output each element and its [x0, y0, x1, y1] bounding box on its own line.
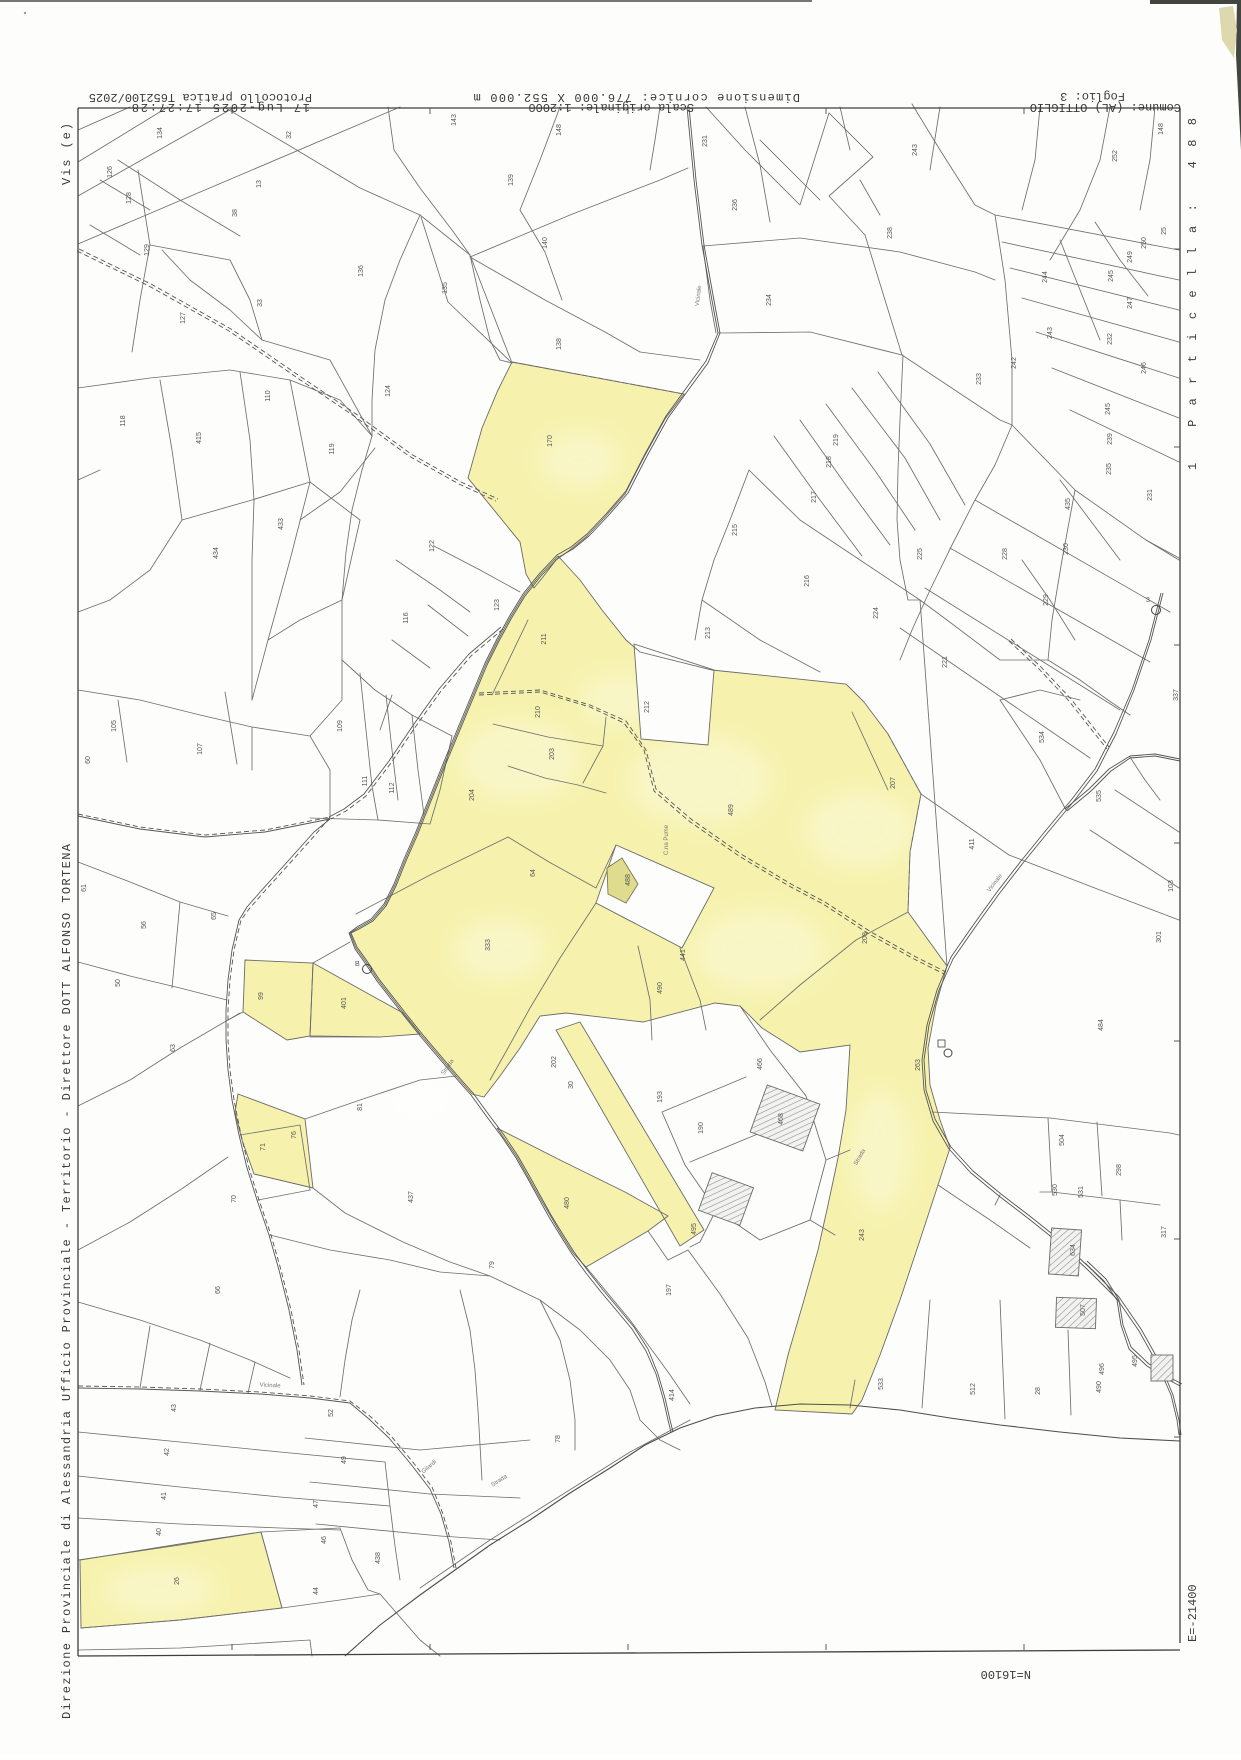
svg-text:46: 46: [321, 1536, 328, 1544]
svg-text:243: 243: [1047, 327, 1054, 339]
svg-text:250: 250: [1141, 237, 1148, 249]
svg-text:233: 233: [976, 373, 983, 385]
svg-text:135: 135: [442, 282, 449, 294]
svg-text:Direzione Provinciale di Aless: Direzione Provinciale di Alessandria Uff…: [60, 843, 74, 1719]
svg-text:122: 122: [429, 540, 436, 552]
svg-text:56: 56: [141, 921, 148, 929]
svg-text:17 Lug-2025 17:27:28: 17 Lug-2025 17:27:28: [130, 100, 310, 114]
svg-text:634: 634: [1070, 1244, 1077, 1256]
svg-text:138: 138: [556, 338, 563, 350]
svg-text:484: 484: [1098, 1019, 1105, 1031]
svg-text:438: 438: [375, 1552, 382, 1564]
svg-text:26: 26: [174, 1577, 181, 1585]
svg-text:118: 118: [120, 415, 127, 426]
svg-text:116: 116: [403, 612, 410, 623]
svg-text:127: 127: [180, 312, 187, 324]
svg-text:411: 411: [969, 838, 976, 849]
svg-text:44: 44: [313, 1587, 320, 1595]
svg-text:435: 435: [1065, 498, 1072, 510]
svg-text:495: 495: [691, 1223, 698, 1235]
svg-text:219: 219: [833, 434, 840, 446]
svg-text:246: 246: [1141, 362, 1148, 374]
svg-text:230: 230: [1063, 543, 1070, 555]
svg-text:213: 213: [705, 627, 712, 639]
svg-text:Comune: (AL) OTTIGLIO: Comune: (AL) OTTIGLIO: [1030, 100, 1181, 114]
svg-text:78: 78: [555, 1435, 562, 1443]
svg-text:415: 415: [196, 432, 203, 444]
svg-text:247: 247: [1127, 297, 1134, 309]
svg-text:107: 107: [197, 743, 204, 755]
svg-text:441: 441: [680, 949, 687, 961]
svg-text:C.na Pume: C.na Pume: [664, 824, 670, 855]
svg-text:207: 207: [890, 777, 897, 789]
svg-text:234: 234: [766, 294, 773, 306]
svg-text:61: 61: [81, 884, 88, 892]
svg-text:99: 99: [258, 992, 265, 1000]
svg-text:535: 535: [1096, 790, 1103, 802]
svg-text:203: 203: [549, 748, 556, 760]
svg-text:243: 243: [859, 1229, 866, 1241]
svg-text:143: 143: [451, 114, 458, 126]
svg-text:218: 218: [826, 456, 833, 468]
svg-text:229: 229: [1043, 594, 1050, 606]
svg-text:242: 242: [1011, 357, 1018, 369]
svg-text:337: 337: [1173, 689, 1180, 701]
svg-text:401: 401: [341, 997, 348, 1009]
svg-text:79: 79: [489, 1261, 496, 1269]
svg-text:B: B: [355, 961, 360, 968]
svg-text:202: 202: [551, 1056, 558, 1068]
svg-text:245: 245: [1105, 403, 1112, 415]
svg-text:110: 110: [265, 390, 272, 401]
svg-text:N=16100: N=16100: [981, 1667, 1031, 1681]
svg-text:249: 249: [1127, 251, 1134, 263]
svg-text:49: 49: [341, 1456, 348, 1464]
svg-text:507: 507: [1080, 1304, 1087, 1316]
svg-text:129: 129: [144, 244, 151, 256]
svg-text:136: 136: [358, 265, 365, 277]
svg-text:197: 197: [666, 1284, 673, 1296]
svg-text:E=-21400: E=-21400: [1186, 1584, 1200, 1642]
svg-text:534: 534: [1039, 731, 1046, 743]
svg-text:32: 32: [286, 131, 293, 139]
svg-text:504: 504: [1059, 1134, 1066, 1146]
svg-text:119: 119: [329, 443, 336, 454]
svg-text:489: 489: [728, 804, 735, 816]
svg-text:112: 112: [389, 782, 396, 793]
svg-text:488: 488: [625, 874, 632, 886]
svg-text:109: 109: [337, 720, 344, 732]
svg-text:123: 123: [494, 599, 501, 611]
svg-text:71: 71: [260, 1143, 267, 1151]
svg-text:437: 437: [408, 1191, 415, 1203]
svg-text:63: 63: [170, 1044, 177, 1052]
svg-text:111: 111: [362, 776, 369, 787]
svg-text:70: 70: [231, 1195, 238, 1203]
svg-text:263: 263: [915, 1059, 922, 1071]
svg-text:298: 298: [1116, 1164, 1123, 1176]
svg-text:64: 64: [530, 869, 537, 877]
svg-text:468: 468: [778, 1113, 785, 1125]
svg-text:466: 466: [757, 1058, 764, 1070]
svg-text:228: 228: [1002, 548, 1009, 560]
svg-text:81: 81: [357, 1103, 364, 1111]
svg-text:30: 30: [568, 1081, 575, 1089]
svg-text:239: 239: [1107, 433, 1114, 445]
svg-text:Vis (e): Vis (e): [60, 123, 74, 185]
svg-text:148: 148: [1158, 123, 1165, 135]
svg-text:236: 236: [732, 199, 739, 211]
svg-text:33: 33: [257, 299, 264, 307]
svg-text:76: 76: [291, 1131, 298, 1139]
svg-text:28: 28: [1035, 1387, 1042, 1395]
svg-text:317: 317: [1161, 1226, 1168, 1238]
svg-text:140: 140: [542, 237, 549, 249]
svg-text:190: 190: [698, 1122, 705, 1134]
svg-text:235: 235: [1106, 463, 1113, 475]
svg-text:128: 128: [126, 192, 133, 204]
svg-text:490: 490: [657, 982, 664, 994]
svg-text:243: 243: [912, 144, 919, 156]
svg-text:533: 533: [878, 1378, 885, 1390]
svg-text:148: 148: [556, 124, 563, 136]
svg-text:221: 221: [942, 656, 949, 668]
svg-text:414: 414: [669, 1389, 676, 1401]
svg-text:490: 490: [1096, 1381, 1103, 1393]
svg-text:231: 231: [702, 135, 709, 147]
svg-text:212: 212: [644, 701, 651, 713]
svg-text:480: 480: [564, 1197, 571, 1209]
svg-text:433: 433: [278, 518, 285, 530]
svg-text:333: 333: [485, 939, 492, 951]
svg-text:Scala originale: 1:2000: Scala originale: 1:2000: [528, 100, 694, 114]
svg-text:124: 124: [385, 385, 392, 397]
svg-text:42: 42: [164, 1448, 171, 1456]
svg-text:40: 40: [156, 1528, 163, 1536]
svg-text:25: 25: [1161, 227, 1168, 235]
svg-text:139: 139: [508, 174, 515, 186]
svg-text:531: 531: [1078, 1186, 1085, 1198]
svg-text:225: 225: [917, 548, 924, 560]
svg-text:66: 66: [215, 1286, 222, 1294]
svg-text:231: 231: [1147, 489, 1154, 501]
svg-text:134: 134: [157, 127, 164, 139]
svg-text:434: 434: [213, 547, 220, 559]
svg-text:208: 208: [862, 932, 869, 944]
svg-text:211: 211: [541, 633, 548, 644]
svg-text:216: 216: [804, 575, 811, 587]
svg-text:215: 215: [732, 524, 739, 536]
svg-text:217: 217: [811, 491, 818, 503]
svg-text:3: 3: [1146, 597, 1150, 604]
svg-text:193: 193: [657, 1091, 664, 1103]
svg-text:252: 252: [1112, 150, 1119, 162]
svg-text:60: 60: [85, 756, 92, 764]
svg-text:245: 245: [1108, 270, 1115, 282]
svg-text:50: 50: [115, 979, 122, 987]
svg-text:204: 204: [469, 789, 476, 801]
svg-text:512: 512: [970, 1383, 977, 1395]
svg-text:210: 210: [535, 706, 542, 718]
svg-text:52: 52: [328, 1409, 335, 1417]
svg-text:170: 170: [547, 435, 554, 447]
svg-text:495: 495: [1132, 1355, 1139, 1367]
svg-text:65: 65: [211, 912, 218, 920]
svg-text:43: 43: [171, 1404, 178, 1412]
svg-text:Vicinale: Vicinale: [259, 1382, 281, 1389]
svg-text:530: 530: [1052, 1184, 1059, 1196]
svg-text:244: 244: [1042, 271, 1049, 283]
svg-text:301: 301: [1156, 931, 1163, 943]
svg-text:126: 126: [107, 166, 114, 178]
svg-text:238: 238: [887, 227, 894, 239]
svg-text:38: 38: [232, 209, 239, 217]
svg-text:41: 41: [161, 1492, 168, 1500]
svg-text:13: 13: [256, 180, 263, 188]
svg-text:103: 103: [1168, 880, 1175, 892]
svg-text:232: 232: [1107, 333, 1114, 345]
svg-text:496: 496: [1099, 1363, 1106, 1375]
svg-text:224: 224: [873, 607, 880, 619]
svg-text:47: 47: [313, 1500, 320, 1508]
svg-text:105: 105: [111, 720, 118, 732]
